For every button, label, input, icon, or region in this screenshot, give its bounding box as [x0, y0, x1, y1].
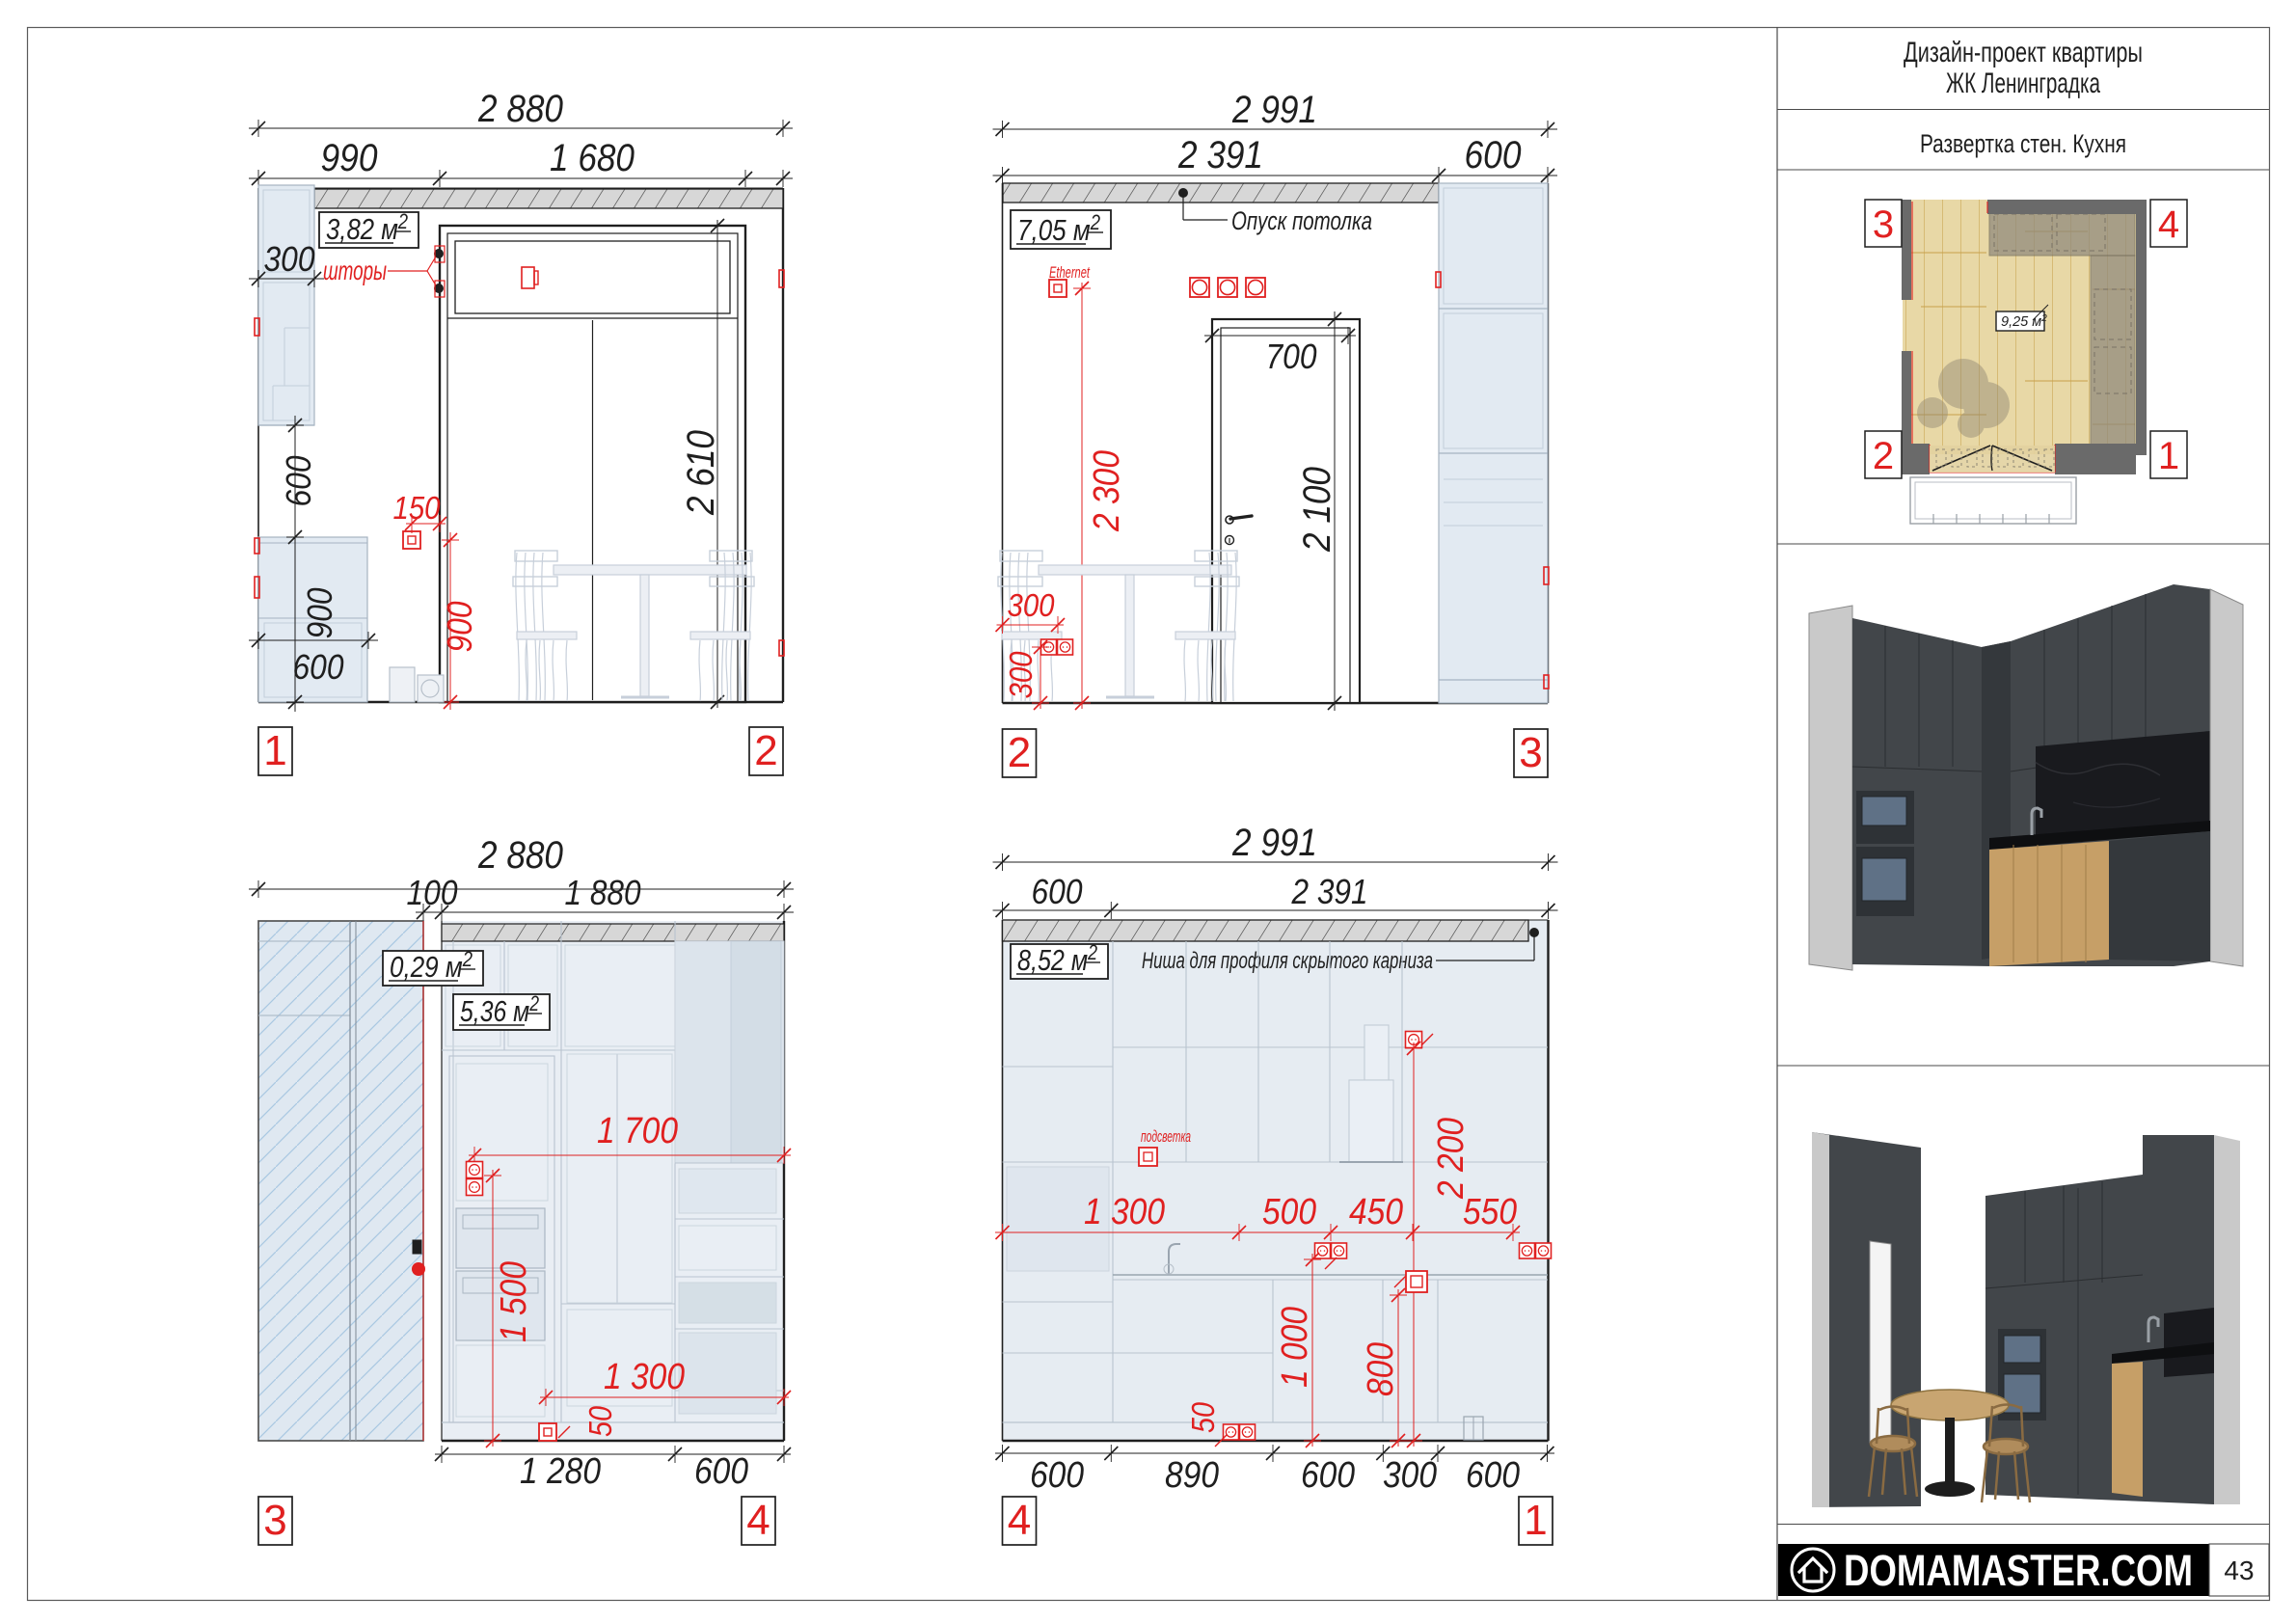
- svg-text:2 300: 2 300: [1087, 450, 1127, 532]
- svg-text:300: 300: [1003, 651, 1039, 699]
- svg-text:150: 150: [393, 490, 442, 526]
- svg-text:100: 100: [407, 873, 458, 912]
- svg-text:50: 50: [1185, 1401, 1221, 1433]
- svg-text:900: 900: [300, 588, 339, 639]
- svg-text:990: 990: [321, 137, 378, 179]
- svg-text:2 880: 2 880: [477, 834, 563, 877]
- svg-text:подсветка: подсветка: [1141, 1127, 1191, 1146]
- svg-text:300: 300: [264, 239, 315, 279]
- svg-text:900: 900: [440, 602, 479, 653]
- svg-text:600: 600: [1030, 1455, 1084, 1496]
- svg-text:600: 600: [293, 647, 344, 687]
- svg-text:1: 1: [1524, 1497, 1547, 1544]
- svg-text:1 700: 1 700: [597, 1111, 678, 1151]
- svg-text:2 200: 2 200: [1431, 1118, 1472, 1200]
- svg-text:Дизайн-проект квартиры: Дизайн-проект квартиры: [1904, 37, 2143, 68]
- svg-text:2: 2: [754, 727, 777, 774]
- svg-text:2 991: 2 991: [1231, 822, 1317, 864]
- svg-text:4: 4: [1008, 1497, 1031, 1544]
- svg-text:8,52 м2: 8,52 м2: [1017, 940, 1097, 977]
- svg-text:Ниша для профиля скрытого карн: Ниша для профиля скрытого карниза: [1142, 948, 1433, 974]
- svg-text:500: 500: [1262, 1192, 1316, 1232]
- svg-text:0,29 м2: 0,29 м2: [390, 947, 473, 984]
- svg-text:3: 3: [1519, 729, 1542, 776]
- svg-text:300: 300: [1008, 587, 1056, 623]
- svg-text:7,05 м2: 7,05 м2: [1017, 210, 1100, 247]
- svg-text:300: 300: [1383, 1455, 1437, 1496]
- svg-text:2 991: 2 991: [1231, 89, 1317, 131]
- svg-text:600: 600: [1032, 872, 1083, 911]
- svg-text:5,36 м2: 5,36 м2: [460, 991, 539, 1028]
- svg-text:9,25 м2: 9,25 м2: [2001, 313, 2047, 330]
- svg-text:3: 3: [263, 1497, 286, 1544]
- svg-text:600: 600: [1301, 1455, 1355, 1496]
- svg-text:2 610: 2 610: [680, 430, 722, 516]
- svg-text:50: 50: [582, 1405, 618, 1437]
- svg-text:Развертка стен. Кухня: Развертка стен. Кухня: [1920, 129, 2126, 158]
- svg-text:2 391: 2 391: [1177, 134, 1263, 176]
- svg-text:2: 2: [1873, 435, 1894, 477]
- svg-text:2: 2: [1008, 729, 1031, 776]
- svg-text:DOMAMASTER.COM: DOMAMASTER.COM: [1844, 1546, 2193, 1595]
- svg-text:2 880: 2 880: [477, 88, 563, 130]
- svg-text:450: 450: [1349, 1192, 1403, 1232]
- svg-text:600: 600: [1466, 1455, 1520, 1496]
- svg-text:1 300: 1 300: [1084, 1192, 1165, 1232]
- svg-text:550: 550: [1463, 1192, 1517, 1232]
- svg-text:4: 4: [746, 1497, 770, 1544]
- svg-text:600: 600: [1465, 134, 1522, 176]
- svg-text:1 500: 1 500: [494, 1261, 534, 1342]
- svg-text:1: 1: [263, 727, 286, 774]
- svg-text:1 300: 1 300: [604, 1357, 685, 1397]
- svg-text:Опуск потолка: Опуск потолка: [1231, 206, 1372, 235]
- svg-text:700: 700: [1266, 337, 1317, 376]
- svg-text:1 680: 1 680: [550, 137, 635, 179]
- svg-text:800: 800: [1361, 1342, 1401, 1396]
- svg-text:1 880: 1 880: [565, 873, 641, 912]
- svg-text:3: 3: [1873, 203, 1894, 246]
- svg-text:43: 43: [2224, 1555, 2254, 1585]
- svg-text:ЖК Ленинградка: ЖК Ленинградка: [1946, 68, 2100, 99]
- svg-text:600: 600: [279, 456, 318, 507]
- svg-text:4: 4: [2158, 203, 2179, 246]
- svg-text:1 280: 1 280: [520, 1451, 601, 1492]
- svg-text:2 100: 2 100: [1296, 467, 1338, 553]
- svg-text:1: 1: [2158, 435, 2179, 477]
- svg-text:шторы: шторы: [323, 256, 387, 285]
- svg-text:1 000: 1 000: [1275, 1307, 1315, 1388]
- svg-text:3,82 м2: 3,82 м2: [326, 209, 408, 246]
- svg-text:2 391: 2 391: [1291, 872, 1368, 911]
- svg-text:600: 600: [694, 1451, 748, 1492]
- svg-text:890: 890: [1165, 1455, 1219, 1496]
